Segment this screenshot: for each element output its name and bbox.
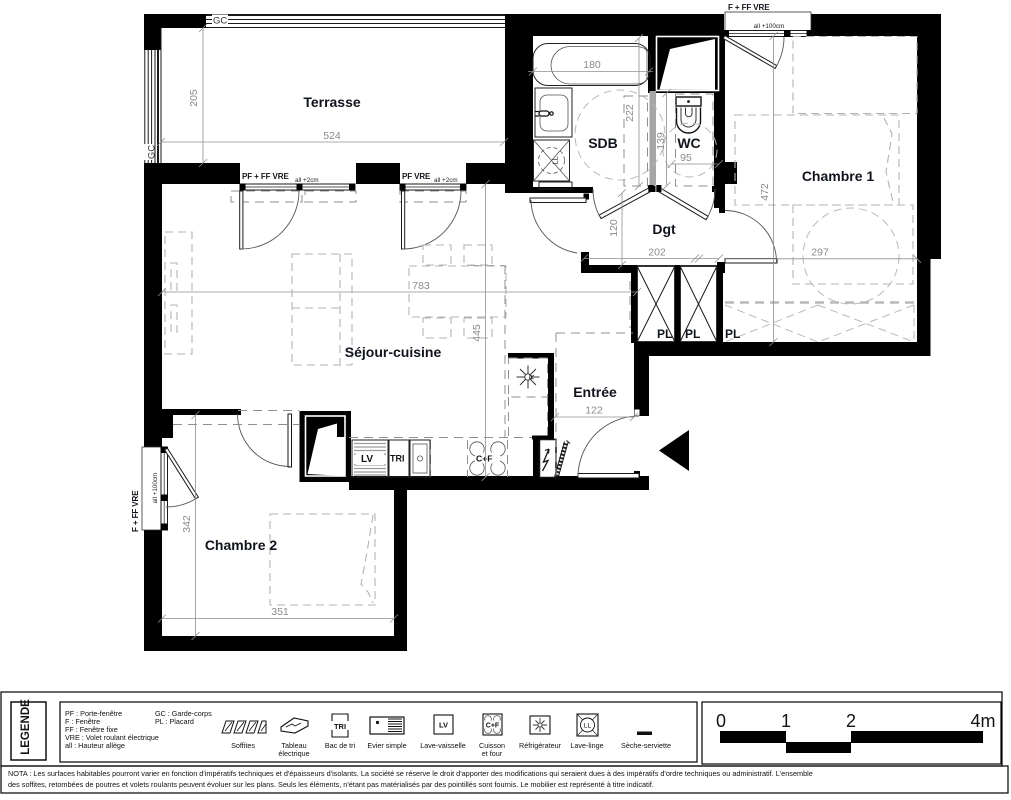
svg-text:TRI: TRI [334,722,346,731]
svg-text:95: 95 [680,152,692,164]
svg-text:342: 342 [181,515,193,533]
svg-text:C+F: C+F [486,723,500,730]
svg-text:472: 472 [759,183,771,201]
svg-text:NOTA : Les surfaces habitables: NOTA : Les surfaces habitables pourront … [8,769,813,778]
svg-text:4m: 4m [970,711,995,731]
svg-text:F + FF VRE: F + FF VRE [131,490,140,532]
svg-text:Dgt: Dgt [652,221,676,237]
svg-text:PL : Placard: PL : Placard [155,717,194,726]
svg-text:PL: PL [725,327,740,341]
svg-text:202: 202 [648,247,666,259]
svg-text:1: 1 [781,711,791,731]
svg-text:Soffites: Soffites [231,741,255,750]
svg-text:LV: LV [361,454,373,465]
svg-text:LV: LV [439,721,448,730]
svg-text:Entrée: Entrée [573,384,617,400]
svg-text:all +2cm: all +2cm [295,177,319,184]
svg-text:Bac de tri: Bac de tri [325,741,356,750]
svg-text:SDB: SDB [588,135,618,151]
svg-text:Séjour-cuisine: Séjour-cuisine [345,344,442,360]
svg-text:électrique: électrique [278,749,309,758]
svg-text:LL: LL [551,156,560,164]
svg-text:TRI: TRI [390,454,405,464]
svg-text:F + FF VRE: F + FF VRE [728,3,770,12]
svg-text:Terrasse: Terrasse [303,94,361,110]
svg-text:C+F: C+F [476,454,492,464]
svg-text:PL: PL [685,327,700,341]
svg-text:0: 0 [716,711,726,731]
svg-text:139: 139 [655,132,667,150]
svg-text:PF + FF VRE: PF + FF VRE [242,172,289,181]
svg-text:122: 122 [585,405,603,417]
svg-text:120: 120 [608,219,620,237]
svg-text:Chambre 2: Chambre 2 [205,537,278,553]
svg-text:all +100cm: all +100cm [754,23,785,30]
svg-text:Chambre 1: Chambre 1 [802,168,875,184]
svg-text:all +2cm: all +2cm [434,177,458,184]
svg-text:Lave-linge: Lave-linge [570,741,603,750]
svg-text:et four: et four [482,749,503,758]
svg-text:Réfrigérateur: Réfrigérateur [519,741,562,750]
svg-text:445: 445 [471,324,483,342]
svg-text:783: 783 [412,280,430,292]
svg-text:all : Hauteur allège: all : Hauteur allège [65,741,125,750]
svg-text:des soffites, retombées de pou: des soffites, retombées de poutres et vo… [8,780,654,789]
svg-text:PF VRE: PF VRE [402,172,431,181]
svg-text:205: 205 [188,89,200,107]
svg-text:524: 524 [323,130,341,142]
svg-text:Lave-vaisselle: Lave-vaisselle [420,741,466,750]
svg-text:R: R [527,374,536,380]
svg-text:LEGENDE: LEGENDE [20,699,32,755]
svg-text:180: 180 [583,59,601,71]
svg-text:222: 222 [624,104,636,122]
svg-text:GC: GC [213,16,227,27]
svg-text:all +100cm: all +100cm [152,473,159,504]
svg-text:2: 2 [846,711,856,731]
svg-text:351: 351 [271,606,289,618]
svg-text:LL: LL [584,723,592,730]
svg-text:Evier simple: Evier simple [367,741,406,750]
svg-text:WC: WC [677,135,700,151]
svg-text:Sèche-serviette: Sèche-serviette [621,741,671,750]
svg-text:GC: GC [147,145,158,159]
svg-text:PL: PL [657,327,672,341]
svg-text:297: 297 [811,247,829,259]
